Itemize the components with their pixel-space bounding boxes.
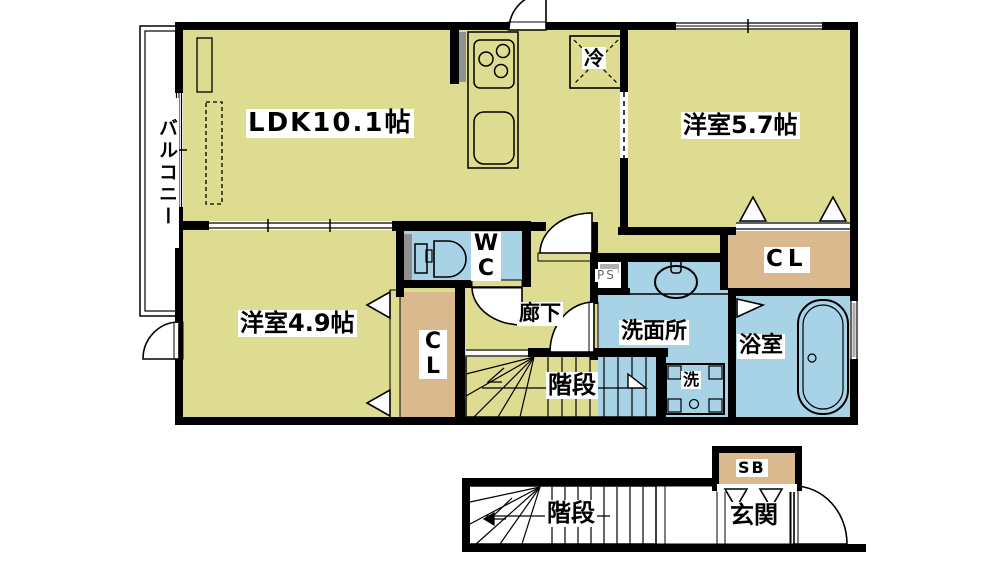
door-arc-ldk-top bbox=[508, 0, 546, 30]
closet-right-label: CL bbox=[764, 247, 810, 273]
wc-label: WC bbox=[471, 232, 501, 281]
hallway-label: 廊下 bbox=[517, 302, 563, 326]
stairs-lower-label: 階段 bbox=[545, 500, 597, 527]
landing-floor bbox=[665, 486, 717, 544]
western-room-57-label: 洋室5.7帖 bbox=[681, 112, 800, 139]
window-bathroom bbox=[850, 301, 858, 359]
door-arc-room49-left bbox=[143, 322, 183, 359]
entrance-label: 玄関 bbox=[728, 502, 780, 529]
washer-label: 洗 bbox=[681, 371, 701, 389]
shoe-box-label: SB bbox=[736, 459, 768, 477]
washroom-label: 洗面所 bbox=[619, 320, 689, 345]
bathroom-label: 浴室 bbox=[737, 334, 785, 359]
western-room-49-label: 洋室4.9帖 bbox=[238, 310, 357, 337]
pipe-space-label: PS bbox=[595, 269, 618, 282]
stairs-upper-label: 階段 bbox=[546, 372, 598, 399]
ldk-label: LDK10.1帖 bbox=[246, 109, 414, 138]
door-arc-entrance bbox=[790, 486, 847, 544]
lower-floor bbox=[462, 446, 866, 552]
balcony-label: バルコニー bbox=[149, 98, 179, 248]
closet-left-label: CL bbox=[419, 330, 447, 379]
floor-plan: バルコニー LDK10.1帖 洋室5.7帖 洋室4.9帖 冷 WC CL CL … bbox=[0, 0, 1000, 562]
refrigerator-label: 冷 bbox=[582, 47, 606, 69]
